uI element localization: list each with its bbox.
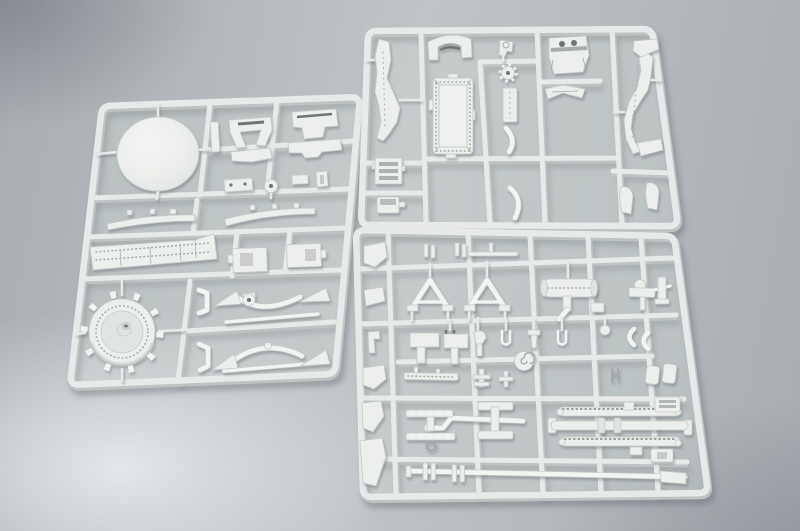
lower-right-sprue — [356, 230, 711, 504]
part-narrow-panel — [503, 88, 517, 122]
part-seat-plate — [549, 36, 589, 74]
part-small-plate — [224, 178, 253, 192]
part-bracket-box-b — [287, 243, 326, 267]
part-bracket-box-a — [228, 247, 267, 272]
upper-right-sprue — [361, 29, 681, 233]
photo-scene: Overhead photograph of three light-gray … — [0, 0, 800, 531]
part-roof-panel — [429, 74, 475, 158]
sprue-photo — [0, 0, 800, 531]
part-mudguard-seg-d — [646, 183, 659, 210]
part-mudguard-seg-c — [620, 187, 633, 214]
left-sprue — [71, 97, 363, 391]
part-leaf-spring-lower — [559, 437, 681, 446]
part-track-section — [372, 158, 405, 184]
part-thin-strip — [210, 122, 220, 152]
